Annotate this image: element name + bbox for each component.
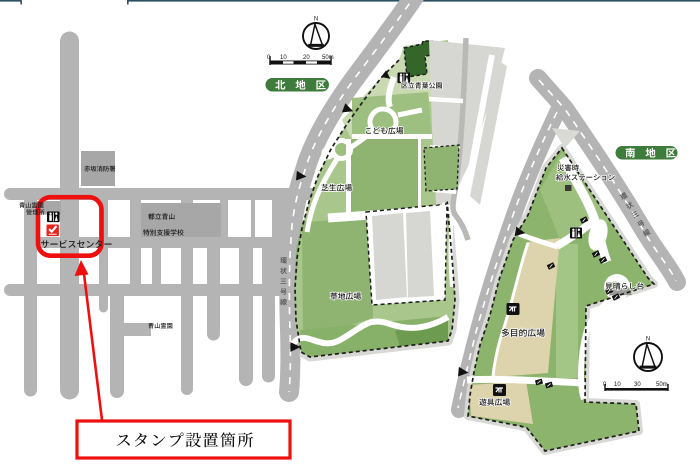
svg-text:N: N bbox=[314, 17, 318, 23]
svg-text:50m: 50m bbox=[322, 55, 334, 61]
svg-text:20: 20 bbox=[303, 55, 310, 61]
svg-text:10: 10 bbox=[614, 382, 621, 388]
svg-text:10: 10 bbox=[280, 55, 287, 61]
svg-text:30: 30 bbox=[634, 382, 641, 388]
svg-text:50m: 50m bbox=[656, 382, 668, 388]
svg-text:N: N bbox=[646, 337, 650, 343]
